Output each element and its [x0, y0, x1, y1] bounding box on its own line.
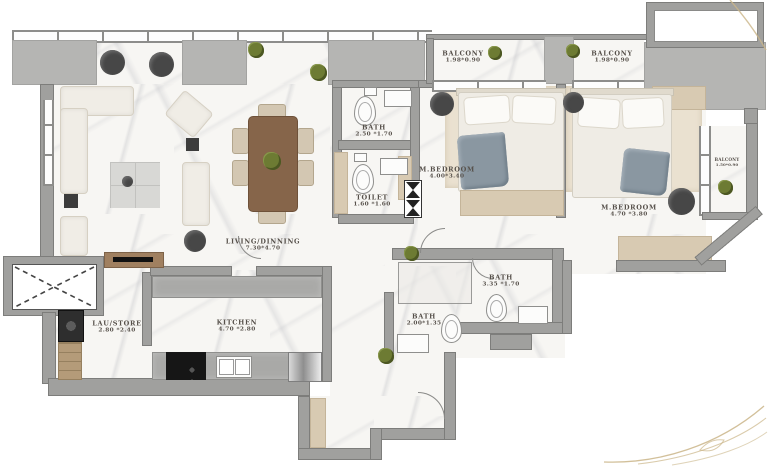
room-name: M.BEDROOM [601, 203, 657, 211]
wall-segment [298, 396, 310, 454]
blanket [620, 148, 670, 197]
room-name: BATH [482, 273, 519, 281]
room-label-laustore: LAU/STORE 2.80 *2.40 [92, 319, 142, 334]
room-dims: 4.70 *2.80 [217, 326, 258, 333]
wall-segment [444, 352, 456, 440]
elevator-x-icon [13, 265, 96, 309]
room-dims: 2.00*1.35 [407, 320, 442, 327]
room-name: M.BEDROOM [419, 165, 475, 173]
wall-segment [256, 266, 330, 276]
balcony3-floor [706, 126, 748, 216]
gold-decor-top-icon [726, 0, 768, 52]
room-label-bath-mid: BATH 3.35 *1.70 [482, 273, 519, 288]
sink [380, 158, 408, 175]
room-label-balcony3: BALCONY 1.50*0.90 [715, 157, 740, 167]
wall-segment [338, 214, 414, 224]
plant-icon [263, 152, 281, 170]
room-label-bath-top: BATH 2.50 *1.70 [355, 123, 392, 138]
terrace-table-icon [100, 50, 125, 75]
side-table-icon [186, 138, 199, 151]
room-dims: 1.98*0.90 [591, 57, 632, 64]
room-name: TOILET [353, 193, 390, 201]
wall-segment [338, 140, 414, 150]
plant-icon [488, 46, 502, 60]
flush-plate [354, 153, 367, 162]
room-label-bedroom2: M.BEDROOM 4.70 *3.80 [601, 203, 657, 218]
appliance-icon [288, 352, 322, 382]
coffee-table-icon [122, 176, 133, 187]
room-dims: 4.00*3.40 [419, 173, 475, 180]
room-label-living: LIVING/DINNING 7.30*4.70 [226, 237, 300, 252]
left-window [43, 100, 54, 186]
kitchen-sink [216, 356, 252, 378]
sofa-section [60, 108, 88, 194]
wall-segment [322, 266, 332, 382]
room-label-bedroom1: M.BEDROOM 4.00*3.40 [419, 165, 475, 180]
sink [518, 306, 548, 324]
room-label-balcony1: BALCONY 1.98*0.90 [442, 49, 483, 64]
wall-segment [490, 334, 532, 350]
room-name: BATH [355, 123, 392, 131]
flush-plate [364, 87, 377, 96]
wall-segment [426, 38, 434, 84]
tv-console [104, 252, 164, 268]
sofa-chaise [60, 216, 88, 256]
room-label-bath-low: BATH 2.00*1.35 [407, 312, 442, 327]
room-label-balcony2: BALCONY 1.98*0.90 [591, 49, 632, 64]
tv-icon [113, 257, 153, 262]
wall-segment [142, 272, 152, 346]
wall-segment [332, 80, 422, 88]
gold-decor-bottom-icon [596, 388, 768, 466]
wall-segment [370, 428, 382, 460]
dining-chair [232, 160, 249, 186]
sofa-section [182, 162, 210, 226]
toilet-room-finish [334, 152, 348, 214]
wall-segment [744, 108, 758, 124]
sink [384, 90, 412, 107]
wall-segment [42, 312, 56, 384]
entry-console [310, 398, 326, 448]
kitchen-counter-top [152, 276, 322, 298]
room-label-toilet: TOILET 1.60 *1.60 [353, 193, 390, 208]
toilet-fixture [441, 314, 462, 343]
wall-segment [384, 292, 394, 354]
nightstand-icon [563, 92, 584, 113]
terrace-table-icon [149, 52, 174, 77]
room-label-kitchen: KITCHEN 4.70 *2.80 [217, 318, 258, 333]
room-dims: 2.80 *2.40 [92, 327, 142, 334]
room-dims: 4.70 *3.80 [601, 211, 657, 218]
floor-plan-canvas: BALCONY 1.98*0.90 BALCONY 1.98*0.90 BALC… [0, 0, 768, 466]
dining-chair [297, 160, 314, 186]
plant-icon [566, 44, 580, 58]
washing-machine-icon [58, 310, 84, 342]
room-name: KITCHEN [217, 318, 258, 326]
pillow [463, 94, 511, 125]
stove-icon [166, 352, 206, 380]
shower-enclosure [398, 262, 472, 304]
balcony3-window [699, 126, 711, 216]
sink-basin [219, 359, 234, 375]
room-dims: 1.98*0.90 [442, 57, 483, 64]
laundry-shelf [58, 342, 82, 380]
sink-basin [235, 359, 250, 375]
room-dims: 3.35 *1.70 [482, 281, 519, 288]
room-dims: 1.60 *1.60 [353, 201, 390, 208]
bed-bench [460, 190, 564, 216]
room-name: BALCONY [442, 49, 483, 57]
plant-icon [378, 348, 394, 364]
room-dims: 2.50 *1.70 [355, 131, 392, 138]
plant-icon [248, 42, 264, 58]
elevator-shaft [12, 264, 97, 310]
room-dims: 7.30*4.70 [226, 245, 300, 252]
terrace-block-left [12, 40, 97, 85]
room-name: LAU/STORE [92, 319, 142, 327]
wall-segment [426, 34, 648, 40]
toilet-fixture [352, 164, 374, 194]
wall-segment [746, 120, 758, 220]
round-table-icon [668, 188, 695, 215]
pillow [511, 95, 556, 125]
dining-chair [232, 128, 249, 154]
sink [397, 334, 429, 353]
room-name: BATH [407, 312, 442, 320]
plant-icon [404, 246, 419, 261]
plant-icon [718, 180, 733, 195]
side-table-icon [64, 194, 78, 208]
blanket [457, 132, 510, 190]
terrace-block-right [328, 40, 425, 85]
nightstand-icon [430, 92, 454, 116]
coffee-rug [110, 162, 160, 208]
wall-segment [616, 260, 726, 272]
toilet-fixture [354, 96, 376, 126]
terrace-block-mid [182, 40, 247, 85]
room-dims: 1.50*0.90 [715, 162, 740, 167]
dining-chair [297, 128, 314, 154]
toilet-fixture [486, 294, 507, 322]
room-name: BALCONY [591, 49, 632, 57]
round-table-icon [184, 230, 206, 252]
duct-shaft [404, 180, 422, 218]
room-name: LIVING/DINNING [226, 237, 300, 245]
plant-icon [310, 64, 327, 81]
wall-segment [562, 260, 572, 334]
wall-segment [48, 378, 310, 396]
shaft-x-icon [405, 181, 421, 217]
pillow [621, 97, 665, 129]
